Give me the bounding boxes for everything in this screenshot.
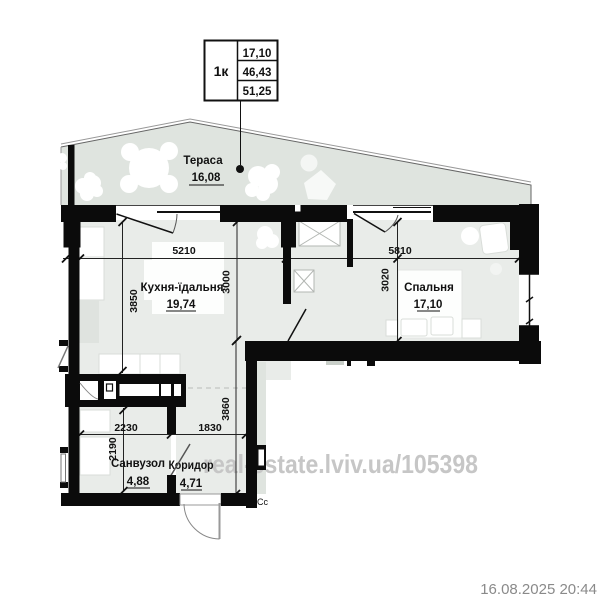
svg-text:1к: 1к bbox=[214, 63, 230, 79]
svg-text:4,71: 4,71 bbox=[180, 478, 203, 490]
svg-text:real-estate.lviv.ua/105398: real-estate.lviv.ua/105398 bbox=[203, 449, 478, 479]
svg-text:Санвузол: Санвузол bbox=[111, 458, 165, 470]
svg-text:4,88: 4,88 bbox=[127, 476, 150, 488]
svg-text:1830: 1830 bbox=[198, 422, 222, 434]
svg-text:17,10: 17,10 bbox=[414, 299, 443, 311]
svg-text:16,08: 16,08 bbox=[192, 172, 221, 184]
svg-text:2230: 2230 bbox=[114, 422, 138, 434]
svg-text:5810: 5810 bbox=[388, 245, 412, 257]
svg-text:5210: 5210 bbox=[172, 245, 196, 257]
svg-text:3020: 3020 bbox=[380, 268, 392, 292]
svg-text:Тераса: Тераса bbox=[183, 155, 223, 167]
svg-text:16.08.2025 20:44: 16.08.2025 20:44 bbox=[480, 581, 597, 598]
svg-text:Спальня: Спальня bbox=[404, 282, 454, 294]
svg-text:51,25: 51,25 bbox=[243, 86, 272, 98]
svg-text:46,43: 46,43 bbox=[243, 67, 272, 79]
svg-text:3860: 3860 bbox=[220, 397, 232, 421]
svg-text:3850: 3850 bbox=[128, 289, 140, 313]
svg-text:Коридор: Коридор bbox=[169, 460, 214, 472]
svg-text:Сс: Сс bbox=[257, 497, 268, 507]
svg-text:19,74: 19,74 bbox=[167, 299, 196, 311]
svg-text:Кухня-їдальня: Кухня-їдальня bbox=[141, 282, 224, 294]
svg-text:17,10: 17,10 bbox=[243, 48, 272, 60]
